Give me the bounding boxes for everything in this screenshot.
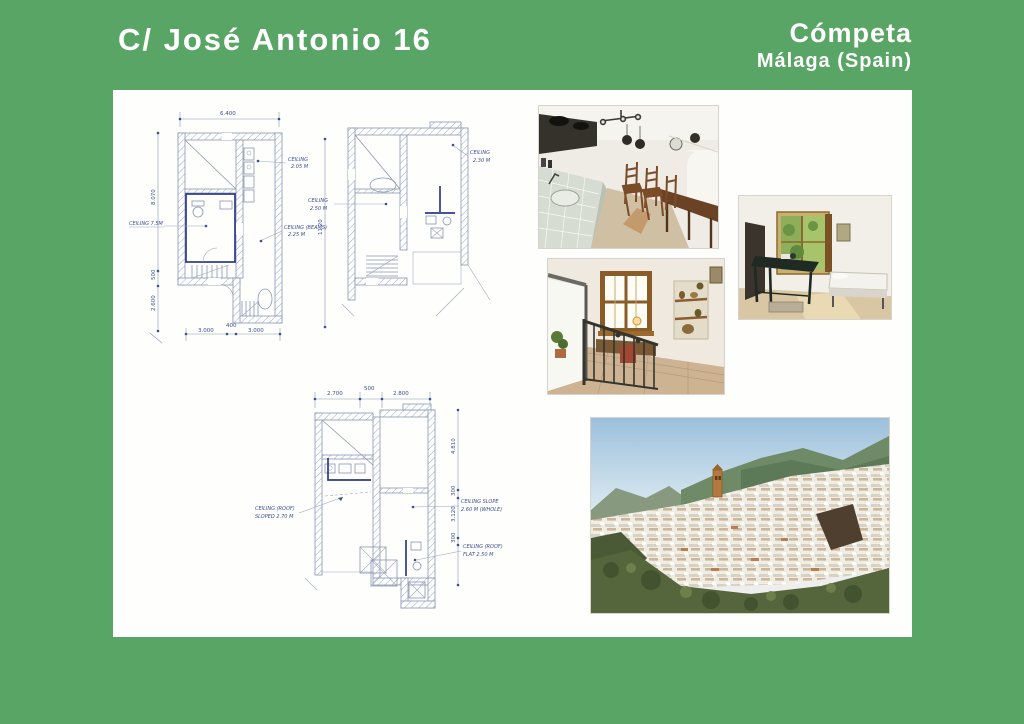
church-tower: [712, 464, 723, 497]
dim-left-2: 500: [151, 269, 157, 280]
dim-right-2: 300: [451, 485, 457, 496]
patio-doorway: [548, 275, 586, 391]
annotation-roof-flat-a: CEILING (ROOF): [463, 544, 503, 550]
kitchen-dining-photo: [538, 105, 719, 249]
floor-plan-ground: 6.400 8.070 500 2.600 11.20 3.000 400 3.…: [128, 103, 335, 345]
annotation-ceiling-right-b: 2.30 M: [473, 158, 491, 164]
dim-right-3: 3.120: [451, 506, 457, 522]
alcove-shelves: [674, 281, 708, 339]
annotation-ceiling-left-b: 2.50 M: [310, 206, 328, 212]
dim-top: 6.400: [220, 111, 236, 117]
village-panorama-art: [591, 418, 889, 613]
stair-landing-photo: [547, 258, 725, 395]
dim-bottom-3: 3.000: [248, 328, 264, 334]
annotation-roof-flat-b: FLAT 2.50 M: [463, 552, 494, 558]
interior-fixtures: [185, 140, 272, 316]
dim-bottom-1: 3.000: [198, 328, 214, 334]
brochure-page: C/ José Antonio 16 Cómpeta Málaga (Spain…: [0, 0, 1024, 724]
header-town: Cómpeta: [612, 18, 912, 49]
annotation-slope-right-a: CEILING SLOPE: [461, 499, 499, 505]
rug: [769, 302, 803, 312]
dim-top-2: 500: [364, 386, 375, 392]
dim-right-4: 300: [451, 532, 457, 543]
slide-canvas: { "header": { "title": "C/ José Antonio …: [0, 0, 1024, 724]
dim-top-3: 2.800: [393, 391, 409, 397]
wall-picture: [710, 267, 722, 283]
dim-right-1: 4.810: [451, 438, 457, 454]
annotation-ceiling-right-a: CEILING: [470, 150, 490, 156]
floor-plan-first: CEILING 2.50 M CEILING 2.30 M: [306, 116, 506, 333]
walls: [305, 404, 435, 608]
dim-bottom-2: 400: [226, 323, 237, 329]
annotation-ceiling-left-a: CEILING: [308, 198, 328, 204]
header-region: Málaga (Spain): [612, 50, 912, 73]
annotation-roof-left-b: SLOPED 2.70 M: [255, 514, 294, 520]
floor-plan-top: 2.700 500 2.800 4.810 300 3.120 300: [253, 370, 518, 628]
ceiling-annotations: CEILING 7.5M CEILING 2.05 M CEILING (BEA…: [129, 157, 327, 242]
content-sheet: 6.400 8.070 500 2.600 11.20 3.000 400 3.…: [113, 90, 912, 637]
village-panorama-photo: [590, 417, 890, 614]
page-title: C/ José Antonio 16: [118, 22, 432, 58]
wall-picture: [837, 224, 850, 241]
kitchen-dining-art: [539, 106, 718, 248]
annotation-roof-left-a: CEILING (ROOF): [255, 506, 295, 512]
dim-left-3: 2.600: [151, 295, 157, 311]
bedroom-photo: [738, 195, 892, 320]
dim-left-1: 8.070: [151, 189, 157, 205]
annotation-slope-right-b: 2.60 M (WHOLE): [461, 507, 502, 513]
dim-top-1: 2.700: [327, 391, 343, 397]
annotation-ceiling-right-2b: 2.25 M: [288, 232, 306, 238]
bedroom-art: [739, 196, 891, 319]
annotation-ceiling-left: CEILING 7.5M: [129, 221, 164, 227]
window: [598, 271, 654, 336]
stair-landing-art: [548, 259, 724, 394]
